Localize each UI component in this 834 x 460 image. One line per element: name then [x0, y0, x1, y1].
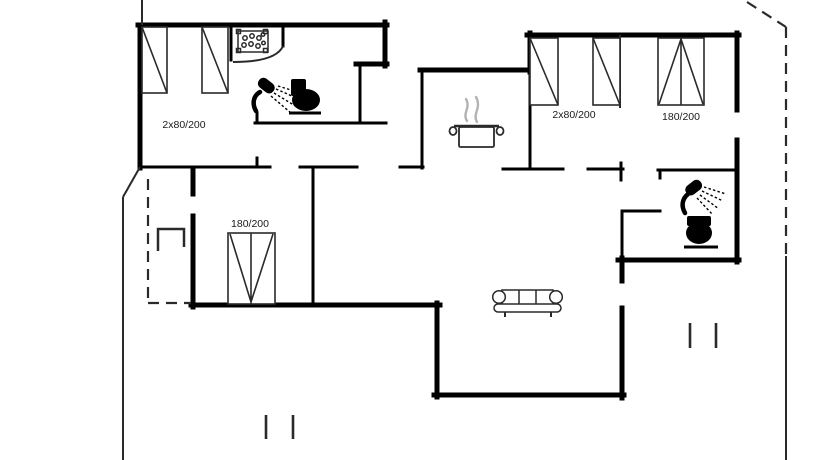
bed-size-label: 2x80/200 — [552, 109, 595, 121]
double-bed-icon — [228, 233, 275, 304]
bed-size-label: 180/200 — [662, 111, 700, 123]
bed-size-label: 2x80/200 — [162, 119, 205, 131]
toilet-icon — [289, 79, 321, 113]
toilet-icon — [684, 216, 718, 247]
floor-plan: 2x80/200 2x80/200 180/200 180/200 — [0, 0, 834, 460]
sofa-icon — [493, 290, 563, 317]
shower-icon — [683, 178, 726, 215]
chimney-bracket-icon — [158, 229, 184, 251]
single-bed-icon — [202, 27, 228, 93]
single-bed-icon — [593, 38, 620, 105]
single-bed-icon — [530, 38, 558, 105]
washbasin-icon — [237, 30, 269, 53]
cooking-pot-icon — [450, 126, 504, 147]
double-bed-icon — [658, 38, 704, 105]
single-bed-icon — [142, 27, 167, 93]
floor-plan-drawing: 2x80/200 2x80/200 180/200 180/200 — [0, 0, 834, 460]
steam-icon — [465, 97, 478, 122]
bed-size-label: 180/200 — [231, 218, 269, 230]
